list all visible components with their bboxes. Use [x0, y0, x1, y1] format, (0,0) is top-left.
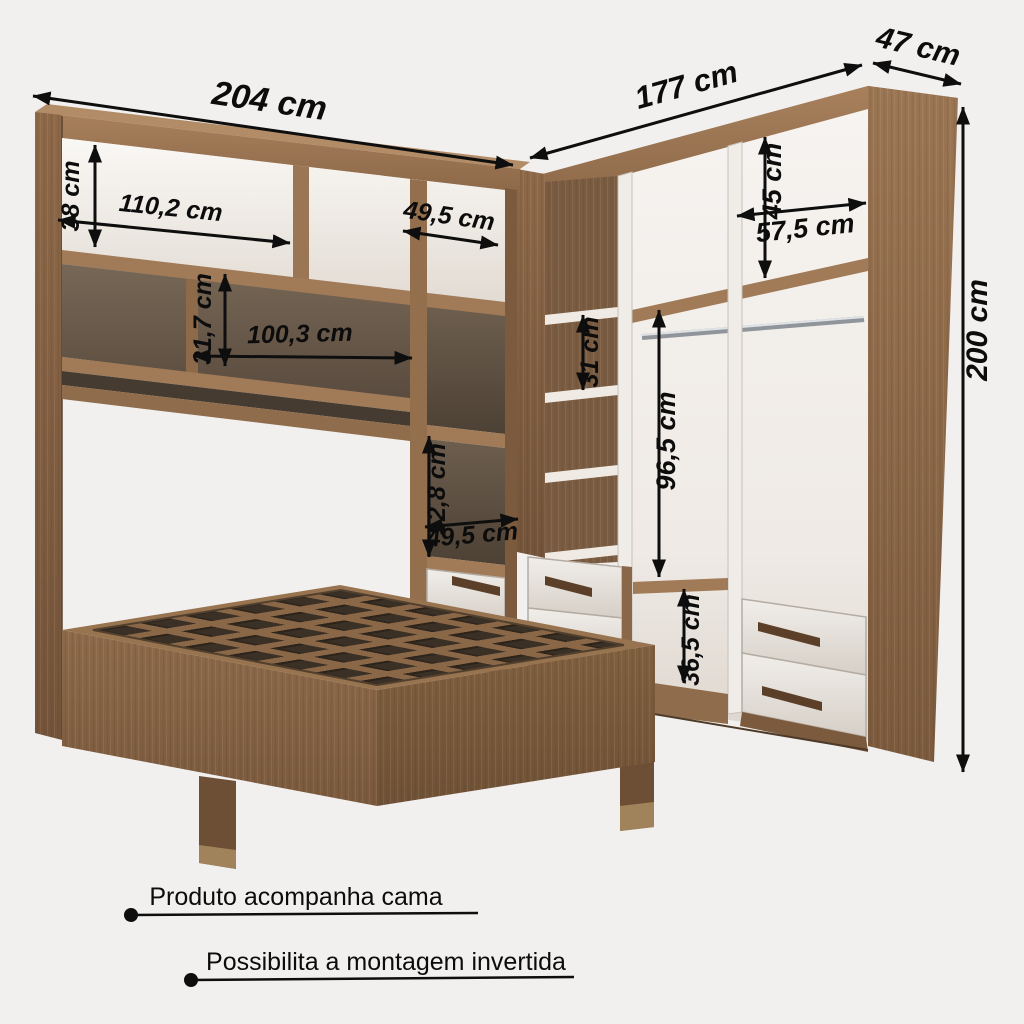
dim-label-31: 31 cm [576, 317, 604, 388]
bed-leg-foot [620, 802, 654, 831]
right-drawer-stack [740, 599, 868, 752]
divider-right [728, 142, 742, 714]
dim-label-45: 45 cm [757, 143, 787, 221]
column-compartment-upper [427, 307, 505, 434]
dim-label-36-5: 36,5 cm [677, 594, 705, 686]
note-text-1: Produto acompanha cama [149, 883, 442, 911]
note-text-2: Possibilita a montagem invertida [206, 948, 566, 976]
dim-label-200: 200 cm [961, 279, 994, 382]
column-right-stile [505, 188, 517, 661]
dim-label-204: 204 cm [209, 74, 330, 128]
dim-label-100-3: 100,3 cm [247, 319, 353, 350]
cubby-divider [293, 165, 309, 281]
note-underline [191, 977, 574, 980]
diagram-canvas: 204 cm 177 cm 47 cm 200 cm 38 cm 110,2 c… [0, 0, 1024, 1024]
note-underline [131, 913, 478, 915]
dim-label-96-5: 96,5 cm [651, 391, 681, 490]
dim-label-177: 177 cm [631, 54, 742, 116]
column-stile [410, 179, 427, 658]
footnotes: Produto acompanha cama Possibilita a mon… [124, 883, 574, 987]
dim-label-31-7: 31,7 cm [189, 273, 217, 365]
dim-arrow-100-3 [193, 356, 412, 358]
dim-label-52-8: 52,8 cm [423, 443, 451, 535]
furniture-dimension-diagram: 204 cm 177 cm 47 cm 200 cm 38 cm 110,2 c… [0, 0, 1024, 1024]
